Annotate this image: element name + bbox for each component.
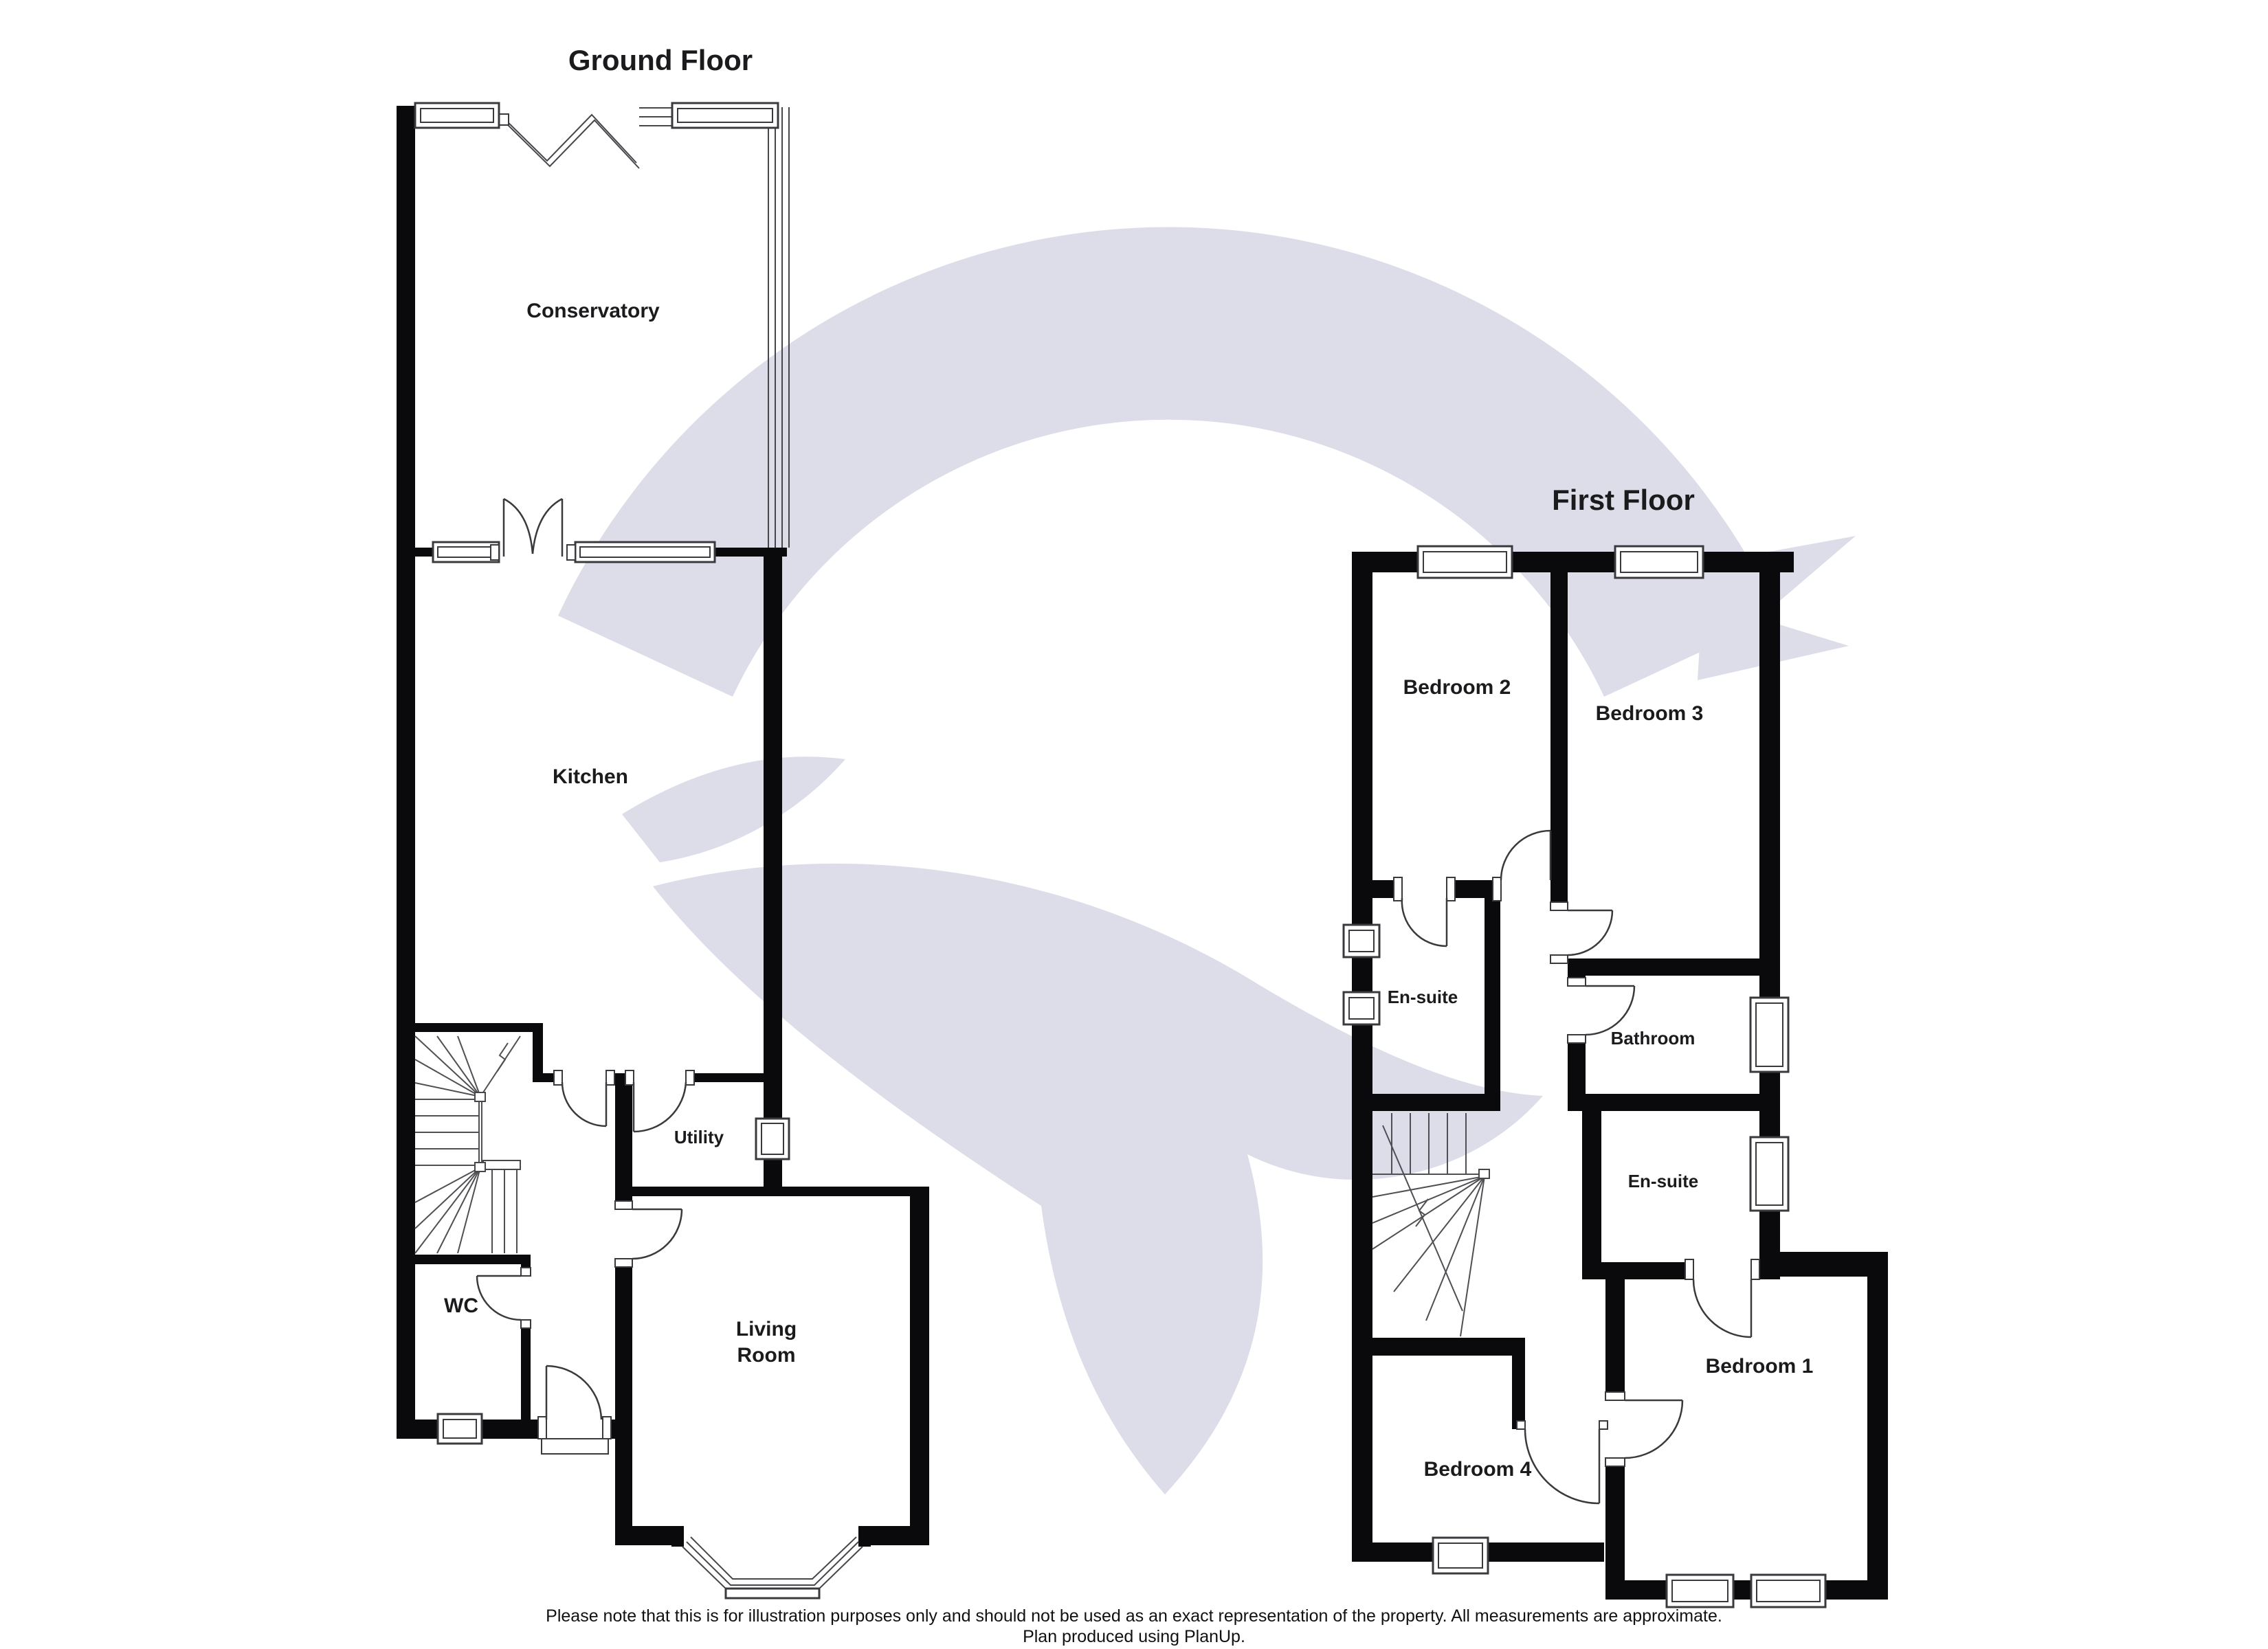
window-bedroom1-left bbox=[1667, 1575, 1733, 1607]
wall-bed1-bottom-c bbox=[1825, 1580, 1888, 1600]
label-living-room-line2: Room bbox=[737, 1344, 796, 1367]
label-utility: Utility bbox=[674, 1127, 724, 1147]
wall-bottom-b bbox=[481, 1420, 546, 1439]
disclaimer-line2: Plan produced using PlanUp. bbox=[1023, 1627, 1245, 1646]
first-floor-title: First Floor bbox=[1552, 484, 1695, 516]
label-wc: WC bbox=[444, 1294, 478, 1317]
label-living-room-line1: Living bbox=[736, 1318, 797, 1340]
folding-door-zigzag-2 bbox=[504, 115, 636, 163]
watermark-lower-wing bbox=[653, 864, 1543, 1494]
window-kitchen-divider-left bbox=[433, 542, 499, 562]
wall-utility-top bbox=[694, 1073, 764, 1082]
door-ensuite2 bbox=[1685, 1259, 1759, 1337]
wall-ensuite1-right bbox=[1485, 880, 1500, 1111]
wall-bed4-step bbox=[1512, 1338, 1525, 1429]
window-conservatory-left bbox=[415, 103, 499, 128]
window-bedroom4 bbox=[1433, 1538, 1488, 1573]
wall-living-top bbox=[615, 1187, 929, 1196]
label-ensuite-top: En-suite bbox=[1388, 987, 1458, 1007]
door-bedroom1 bbox=[1605, 1392, 1682, 1466]
wall-bed4-bottom-b bbox=[1488, 1543, 1604, 1562]
label-bedroom1: Bedroom 1 bbox=[1706, 1355, 1814, 1378]
wall-ff-left bbox=[1352, 552, 1372, 1562]
first-floor-doors bbox=[1394, 831, 1759, 1503]
label-bedroom3: Bedroom 3 bbox=[1596, 702, 1704, 725]
wall-bed1-right bbox=[1867, 1252, 1888, 1600]
wall-living-left-b bbox=[615, 1259, 632, 1545]
watermark-left-feather bbox=[622, 756, 845, 862]
wall-ensuite1-bottom bbox=[1352, 1094, 1500, 1111]
wall-kitchen-right bbox=[764, 548, 782, 1196]
watermark-upper-swoosh bbox=[558, 227, 1779, 697]
wall-bed1-left-b bbox=[1605, 1458, 1625, 1580]
floorplan-page: Ground Floor Conservatory Kitchen Utilit… bbox=[0, 0, 2268, 1649]
label-kitchen: Kitchen bbox=[553, 765, 628, 788]
window-conservatory-right bbox=[672, 103, 778, 128]
door-utility bbox=[625, 1070, 694, 1132]
bay-post-left bbox=[671, 1526, 684, 1547]
label-bathroom: Bathroom bbox=[1611, 1028, 1696, 1048]
door-living-room bbox=[615, 1201, 682, 1267]
window-landing-upper bbox=[1344, 925, 1379, 957]
wall-hall-top bbox=[397, 1023, 543, 1032]
floorplan-drawing: Ground Floor Conservatory Kitchen Utilit… bbox=[0, 0, 2268, 1649]
bay-window bbox=[682, 1537, 863, 1598]
label-bedroom4: Bedroom 4 bbox=[1424, 1458, 1532, 1481]
disclaimer-line1: Please note that this is for illustratio… bbox=[546, 1606, 1722, 1626]
window-ensuite2 bbox=[1750, 1137, 1788, 1211]
window-landing-lower bbox=[1344, 992, 1379, 1024]
french-doors-conservatory bbox=[491, 499, 575, 560]
wall-ensuite2-left bbox=[1582, 1094, 1601, 1279]
wall-hall-seg1 bbox=[533, 1073, 554, 1082]
door-front-entrance bbox=[538, 1366, 611, 1454]
window-bedroom3 bbox=[1615, 546, 1703, 578]
door-wc bbox=[477, 1268, 531, 1328]
watermark-bird-logo bbox=[558, 227, 1856, 1494]
door-kitchen-hall bbox=[554, 1070, 614, 1126]
ground-floor-title: Ground Floor bbox=[568, 44, 753, 76]
wall-bed2-bottom-a bbox=[1352, 880, 1394, 898]
window-bedroom2 bbox=[1418, 546, 1512, 578]
wall-bed1-bottom-a bbox=[1605, 1580, 1667, 1600]
label-bedroom2: Bedroom 2 bbox=[1403, 676, 1511, 699]
door-bedroom2 bbox=[1493, 831, 1550, 901]
window-utility bbox=[756, 1119, 789, 1159]
wall-ensuite2-bottom bbox=[1582, 1262, 1685, 1279]
wall-wc-top bbox=[397, 1255, 531, 1264]
wall-bed4-bottom-a bbox=[1352, 1543, 1433, 1562]
wall-bed1-bottom-b bbox=[1732, 1580, 1753, 1600]
door-bedroom3 bbox=[1550, 902, 1612, 963]
label-ensuite-bottom: En-suite bbox=[1628, 1171, 1699, 1191]
wall-bed1-left-a bbox=[1605, 1267, 1625, 1400]
wall-conservatory-kitchen-left bbox=[397, 548, 438, 557]
window-bedroom1-right bbox=[1751, 1575, 1825, 1607]
ground-floor-staircase bbox=[415, 1036, 520, 1253]
bay-post-right bbox=[858, 1526, 871, 1547]
wall-bottom-a bbox=[397, 1420, 438, 1439]
wall-living-bottom-left bbox=[615, 1526, 677, 1545]
wall-living-bottom-right bbox=[865, 1526, 929, 1545]
wall-left-exterior bbox=[397, 106, 415, 1439]
window-wc bbox=[438, 1414, 482, 1444]
porch-step bbox=[542, 1439, 608, 1454]
wall-living-right bbox=[910, 1187, 929, 1545]
wall-utility-left bbox=[615, 1082, 632, 1187]
window-kitchen-divider-right bbox=[575, 542, 715, 562]
wall-bed3-bottom bbox=[1568, 958, 1780, 976]
wall-bed2-bed3-divider bbox=[1550, 572, 1568, 910]
label-conservatory: Conservatory bbox=[526, 300, 660, 322]
window-bathroom bbox=[1750, 998, 1788, 1072]
wall-bed4-top bbox=[1352, 1338, 1512, 1356]
door-ensuite1 bbox=[1394, 877, 1455, 946]
